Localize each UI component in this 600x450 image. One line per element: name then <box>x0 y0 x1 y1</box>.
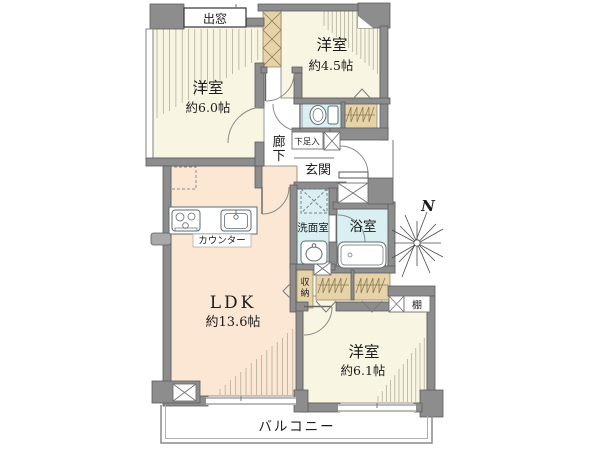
bathtub-icon <box>338 242 386 268</box>
ldk-floor <box>171 166 297 396</box>
shoe-cabinet-label: 下足入 <box>294 138 320 148</box>
wall-wash-bath-1 <box>329 188 337 215</box>
wall-entry-chunk <box>368 178 393 204</box>
room-nw-size: 約6.0帖 <box>186 100 231 115</box>
wall-roomse-top-r <box>336 302 390 311</box>
pipe-space-shelf <box>389 296 404 312</box>
room-se-label: 洋室 <box>348 343 379 361</box>
washbasin-icon <box>301 241 327 264</box>
wall-top-b <box>258 4 358 11</box>
meter-box-hall <box>324 132 340 150</box>
entrance-label: 玄関 <box>305 163 331 178</box>
floorplan-canvas: N 出窓 洋室 約6.0帖 洋室 約4.5帖 廊 下 下足入 玄関 洗面室 浴室… <box>0 0 600 450</box>
pipe-space-pillar <box>173 384 196 401</box>
compass-north-label: N <box>420 197 436 215</box>
ldk-label: LDK <box>210 293 257 313</box>
wall-toilet-closet-div <box>341 102 345 128</box>
wall-unit-icon <box>151 233 171 245</box>
counter-label: カウンター <box>198 236 246 247</box>
wall-ldk-roomse <box>296 306 303 400</box>
wall-roomne-door-l <box>261 67 267 73</box>
hallway-label-1: 廊 <box>272 134 285 150</box>
washroom-label: 洗面室 <box>297 221 329 234</box>
entrance-door-leaf <box>339 172 368 178</box>
wall-hall-stub <box>255 166 262 188</box>
wall-shelf-band <box>388 286 435 296</box>
compass: N <box>392 197 443 277</box>
wall-washroom-left <box>290 185 297 268</box>
ldk-size: 約13.6帖 <box>206 315 261 330</box>
room-ne-label: 洋室 <box>316 36 347 54</box>
meter-box-entry <box>338 183 368 203</box>
sink-icon <box>221 210 251 231</box>
wall-left-window <box>146 29 153 159</box>
hallway-label-2: 下 <box>272 149 285 164</box>
wall-top-a <box>246 18 264 26</box>
floorplan-drawing: N 出窓 洋室 約6.0帖 洋室 約4.5帖 廊 下 下足入 玄関 洗面室 浴室… <box>0 0 600 450</box>
stove-icon <box>172 210 200 231</box>
wall-hall-left-2 <box>255 142 264 166</box>
toilet-icon <box>310 106 338 125</box>
room-se-size: 約6.1帖 <box>341 363 386 378</box>
wall-left-lower <box>163 166 171 396</box>
bathroom-label: 浴室 <box>350 218 377 235</box>
room-ne-size: 約4.5帖 <box>309 58 354 73</box>
storage-label-1: 収 <box>300 276 309 288</box>
entrance-door-arc <box>340 146 368 174</box>
storage-label-2: 納 <box>300 287 309 299</box>
toilet-door-arc <box>273 104 300 131</box>
shelf-label: 棚 <box>412 299 422 312</box>
bay-window-label: 出窓 <box>203 11 227 26</box>
wall-ldk-storage <box>290 264 296 312</box>
closet-se-divider <box>351 270 354 300</box>
wall-right-upper <box>380 26 388 140</box>
wall-bath-right <box>388 202 395 273</box>
pillar-bottom-right <box>420 390 443 417</box>
balcony-label: バルコニー <box>258 419 335 435</box>
room-nw-label: 洋室 <box>192 79 223 97</box>
wall-roomnw-bottom <box>146 158 264 166</box>
wall-ldk-step <box>294 390 308 412</box>
compass-star <box>392 212 443 277</box>
pillar-top-left <box>150 4 184 29</box>
wall-roomne-door-r <box>292 67 302 73</box>
